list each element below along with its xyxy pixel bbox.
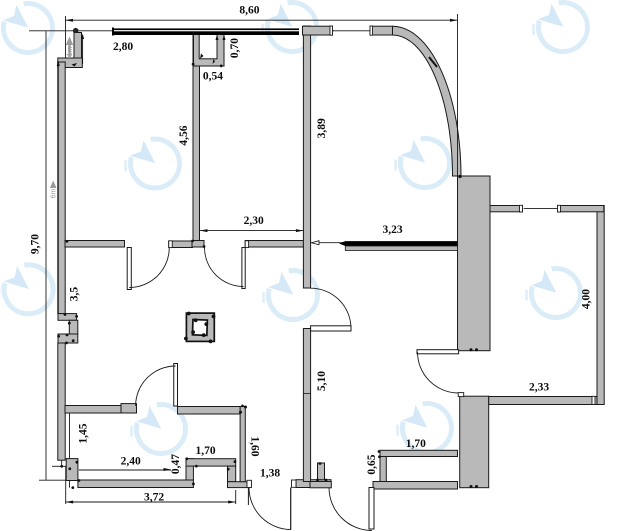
svg-text:3,5: 3,5: [69, 287, 81, 302]
svg-text:0,54: 0,54: [203, 71, 223, 83]
svg-text:5,10: 5,10: [316, 371, 328, 391]
svg-text:0,65: 0,65: [366, 454, 378, 474]
svg-text:1,45: 1,45: [78, 423, 90, 443]
svg-text:1,70: 1,70: [406, 438, 426, 450]
svg-text:2,40: 2,40: [121, 456, 141, 468]
svg-text:3,23: 3,23: [382, 224, 402, 236]
svg-text:4,00: 4,00: [580, 289, 592, 309]
svg-text:9,70: 9,70: [30, 234, 42, 254]
svg-text:1,70: 1,70: [196, 445, 216, 457]
svg-text:2,30: 2,30: [244, 215, 264, 227]
svg-text:6m: 6m: [51, 188, 58, 198]
svg-text:2,33: 2,33: [529, 382, 549, 394]
svg-text:2,80: 2,80: [113, 41, 133, 53]
svg-text:1,38: 1,38: [260, 467, 280, 479]
svg-text:1,60: 1,60: [249, 436, 261, 456]
svg-text:3,89: 3,89: [316, 118, 328, 138]
svg-text:8,60: 8,60: [239, 5, 259, 17]
svg-text:1m: 1m: [67, 46, 74, 56]
svg-text:3,72: 3,72: [144, 492, 164, 504]
svg-text:4,56: 4,56: [178, 125, 190, 145]
svg-text:0,70: 0,70: [229, 38, 241, 58]
svg-text:0,47: 0,47: [170, 454, 182, 474]
